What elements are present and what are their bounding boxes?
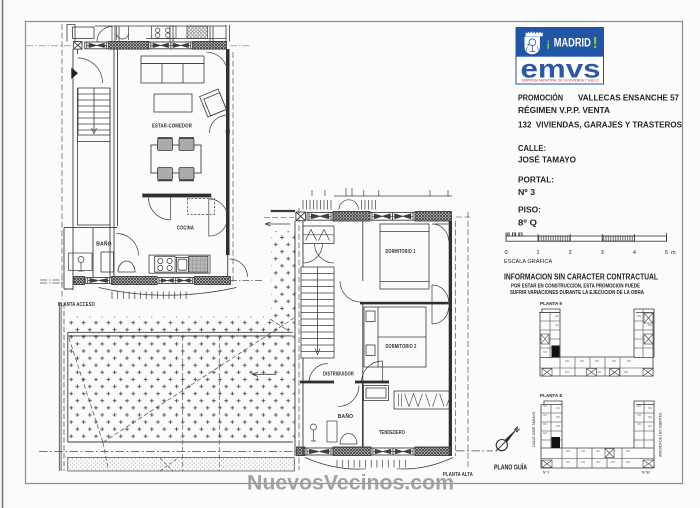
svg-text:INFORMACION SIN CARACTER CONTR: INFORMACION SIN CARACTER CONTRACTUAL bbox=[504, 272, 658, 282]
svg-text:CALLE JOSÉ TAMAYO: CALLE JOSÉ TAMAYO bbox=[531, 411, 536, 447]
svg-text:RÉGIMEN V.P.P. VENTA: RÉGIMEN V.P.P. VENTA bbox=[518, 105, 610, 115]
svg-text:5: 5 bbox=[665, 250, 668, 256]
svg-text:AVENIDA DE LAS SUERTES: AVENIDA DE LAS SUERTES bbox=[659, 412, 663, 457]
svg-text:DORMITORIO 1: DORMITORIO 1 bbox=[386, 249, 416, 255]
svg-text:4: 4 bbox=[633, 250, 636, 256]
svg-text:m: m bbox=[671, 250, 676, 256]
svg-text:PLANTA ACCESO: PLANTA ACCESO bbox=[58, 302, 95, 308]
svg-text:JOSÉ TAMAYO: JOSÉ TAMAYO bbox=[518, 155, 576, 165]
svg-text:ESTAR-COMEDOR: ESTAR-COMEDOR bbox=[152, 124, 192, 130]
svg-text:1: 1 bbox=[537, 250, 540, 256]
svg-text:0: 0 bbox=[504, 250, 507, 256]
svg-text:BAÑO: BAÑO bbox=[338, 413, 354, 420]
svg-text:2: 2 bbox=[569, 250, 572, 256]
svg-text:PLANO GUÍA: PLANO GUÍA bbox=[494, 463, 527, 472]
svg-text:¡: ¡ bbox=[546, 38, 550, 50]
svg-text:POR ESTAR EN CONSTRUCCION, EST: POR ESTAR EN CONSTRUCCION, ESTA PROMOCIO… bbox=[511, 284, 641, 290]
svg-text:!: ! bbox=[593, 35, 598, 52]
svg-text:ESCALA GRAFICA: ESCALA GRAFICA bbox=[504, 259, 552, 265]
svg-text:BAÑO: BAÑO bbox=[96, 241, 112, 248]
svg-text:3: 3 bbox=[601, 250, 604, 256]
svg-text:PORTAL:: PORTAL: bbox=[518, 175, 554, 185]
svg-text:Nº 3: Nº 3 bbox=[543, 471, 549, 475]
svg-text:PLANTA 9: PLANTA 9 bbox=[540, 301, 562, 306]
svg-text:PROMOCIÓN: PROMOCIÓN bbox=[518, 92, 563, 103]
svg-text:132 VIVIENDAS, GARAJES Y TRAS: 132 VIVIENDAS, GARAJES Y TRASTEROS bbox=[518, 120, 682, 130]
svg-text:Nº 3: Nº 3 bbox=[518, 187, 535, 197]
svg-text:Nº 80: Nº 80 bbox=[642, 471, 650, 475]
svg-text:SUFRIR VARIACIONES DURANTE LA: SUFRIR VARIACIONES DURANTE LA EJECUCION … bbox=[510, 290, 644, 296]
svg-text:VALLECAS ENSANCHE 57: VALLECAS ENSANCHE 57 bbox=[578, 93, 679, 103]
svg-text:DISTRIBUIDOR: DISTRIBUIDOR bbox=[323, 372, 354, 378]
svg-text:CALLE:: CALLE: bbox=[518, 143, 546, 153]
svg-text:DORMITORIO 2: DORMITORIO 2 bbox=[386, 344, 417, 350]
svg-text:MADRID: MADRID bbox=[554, 36, 591, 50]
svg-text:COCINA: COCINA bbox=[177, 226, 194, 232]
svg-text:PLANTA 8: PLANTA 8 bbox=[540, 393, 562, 398]
svg-text:EMPRESA MUNICIPAL DE LA VIVIEN: EMPRESA MUNICIPAL DE LA VIVIENDA Y SUELO bbox=[522, 79, 599, 83]
svg-text:TENDEDERO: TENDEDERO bbox=[379, 430, 405, 436]
svg-text:NuevosVecinos.com: NuevosVecinos.com bbox=[247, 472, 454, 495]
svg-text:PISO:: PISO: bbox=[518, 205, 541, 215]
svg-text:8º Q: 8º Q bbox=[518, 218, 537, 228]
